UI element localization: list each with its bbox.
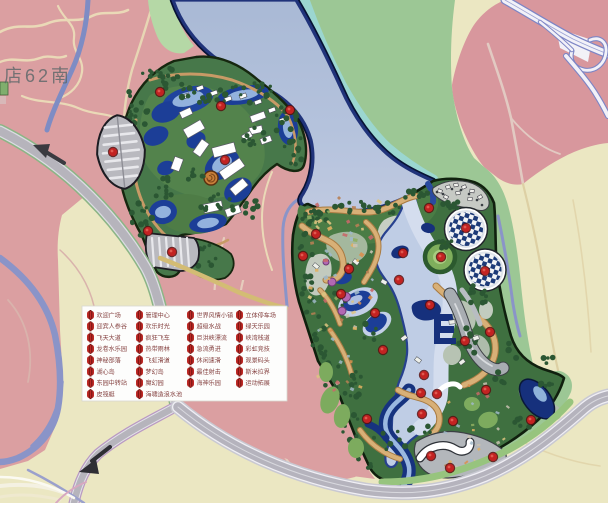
svg-text:热带雨林: 热带雨林 (146, 345, 170, 353)
svg-text:店62南: 店62南 (4, 66, 72, 86)
svg-text:急流勇进: 急流勇进 (197, 345, 221, 353)
svg-text:东园中转站: 东园中转站 (97, 379, 127, 387)
svg-text:休闲速滑: 休闲速滑 (197, 357, 221, 365)
svg-text:飞虹滑道: 飞虹滑道 (146, 357, 170, 365)
svg-text:海神乐园: 海神乐园 (197, 379, 221, 387)
svg-text:皮筏艇: 皮筏艇 (97, 390, 115, 398)
svg-text:绿天乐园: 绿天乐园 (246, 323, 270, 331)
svg-text:欢迎广场: 欢迎广场 (97, 311, 121, 319)
svg-text:运动拓展: 运动拓展 (246, 379, 270, 387)
svg-text:观景码头: 观景码头 (246, 357, 270, 365)
svg-text:斯米拉界: 斯米拉界 (246, 368, 270, 376)
svg-text:最佳射击: 最佳射击 (197, 368, 221, 376)
svg-text:飞天大道: 飞天大道 (97, 334, 121, 342)
svg-text:神秘部落: 神秘部落 (97, 357, 121, 365)
svg-text:龙卷水乐园: 龙卷水乐园 (97, 345, 127, 353)
svg-text:超级水战: 超级水战 (197, 323, 221, 331)
svg-text:彩虹竞技: 彩虹竞技 (246, 345, 270, 353)
svg-text:海啸造浪水池: 海啸造浪水池 (146, 390, 183, 398)
svg-text:湖心岛: 湖心岛 (97, 368, 115, 376)
svg-text:疯狂飞车: 疯狂飞车 (146, 334, 170, 342)
svg-text:世界风情小镇: 世界风情小镇 (197, 311, 234, 319)
svg-text:魔幻园: 魔幻园 (146, 379, 164, 387)
svg-text:梦幻岛: 梦幻岛 (146, 368, 164, 376)
svg-text:巨洪峡漂流: 巨洪峡漂流 (197, 334, 227, 342)
svg-text:立体停车场: 立体停车场 (246, 311, 276, 319)
svg-text:欢乐时光: 欢乐时光 (146, 323, 170, 331)
svg-text:迎宾人参谷: 迎宾人参谷 (97, 323, 127, 331)
svg-text:峡湾栈道: 峡湾栈道 (246, 334, 270, 342)
svg-text:管理中心: 管理中心 (146, 311, 170, 319)
